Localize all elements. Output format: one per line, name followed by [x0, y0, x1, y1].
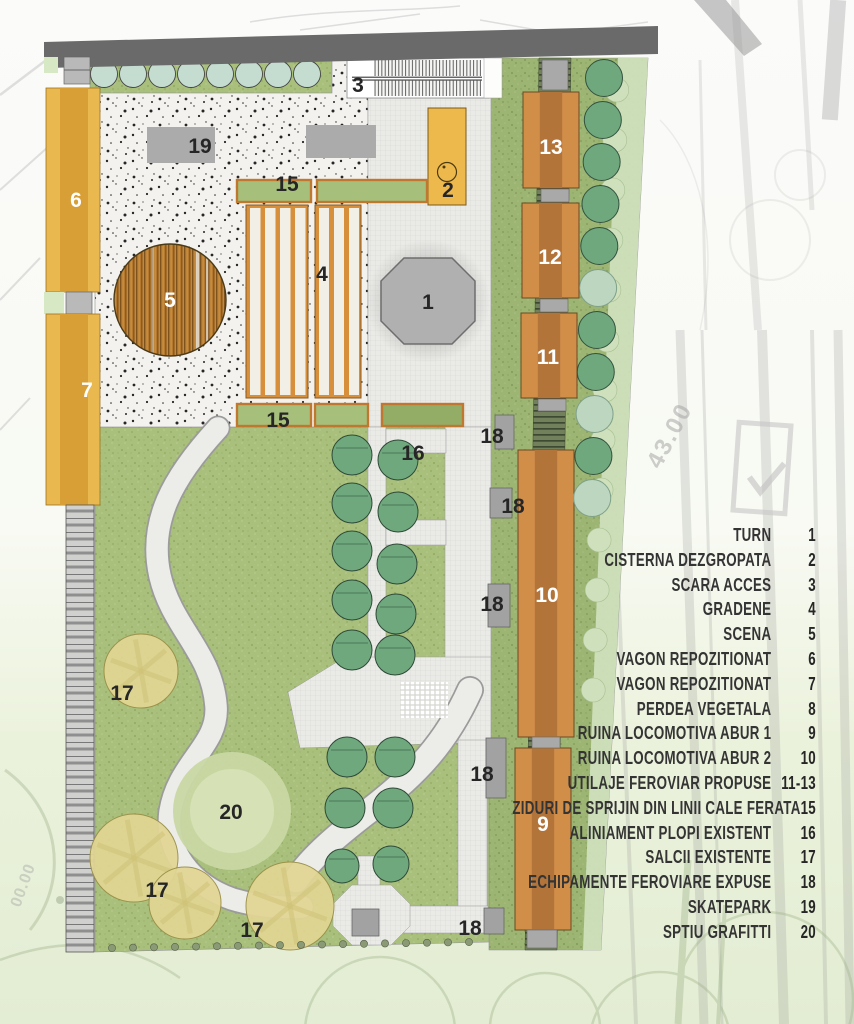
plan-label-18: 18: [501, 495, 525, 518]
plan-label-1: 1: [422, 291, 434, 314]
legend-row: SCARA ACCES 3: [514, 573, 816, 598]
legend-row: SALCII EXISTENTE 17: [514, 845, 816, 870]
legend-row: PERDEA VEGETALA 8: [514, 697, 816, 722]
legend-number: 17: [771, 845, 816, 870]
legend-label: RUINA LOCOMOTIVA ABUR 2: [578, 746, 772, 771]
tree-icon: [332, 630, 372, 670]
legend-number: 3: [771, 573, 816, 598]
legend-row: UTILAJE FEROVIAR PROPUSE 11-13: [514, 771, 816, 796]
plan-label-12: 12: [538, 246, 561, 269]
legend-label: SKATEPARK: [688, 895, 772, 920]
legend-number: 1: [771, 523, 816, 548]
left-railway-track: [66, 505, 94, 952]
legend-number: 16: [771, 821, 816, 846]
tree-icon: [332, 483, 372, 523]
legend-row: CISTERNA DEZGROPATA 2: [514, 548, 816, 573]
plan-label-2: 2: [442, 179, 454, 202]
legend-label: VAGON REPOZITIONAT: [616, 647, 771, 672]
hedge-dot: [255, 942, 262, 949]
plan-label-6: 6: [70, 189, 82, 212]
legend-number: 4: [771, 597, 816, 622]
plan-label-17: 17: [240, 919, 263, 942]
legend-label: ZIDURI DE SPRIJIN DIN LINII CALE FERATA: [512, 796, 800, 821]
tree-icon: [575, 438, 612, 475]
tree-icon: [576, 396, 613, 433]
hedge-dot: [297, 941, 304, 948]
legend: TURN 1 CISTERNA DEZGROPATA 2 SCARA ACCES…: [396, 523, 816, 945]
tree-icon: [581, 228, 618, 265]
legend-number: 20: [771, 920, 816, 945]
tree-icon: [578, 312, 615, 349]
legend-number: 15: [801, 796, 816, 821]
legend-number: 10: [771, 746, 816, 771]
tree-icon: [583, 144, 620, 181]
tree-icon: [265, 61, 292, 88]
plan-label-15: 15: [266, 409, 290, 432]
legend-number: 9: [771, 721, 816, 746]
hedge-dot: [360, 940, 367, 947]
tree-icon: [325, 849, 359, 883]
hedge-dot: [192, 943, 199, 950]
legend-row: VAGON REPOZITIONAT 6: [514, 647, 816, 672]
plan-label-13: 13: [539, 136, 562, 159]
plan-label-18: 18: [480, 425, 504, 448]
legend-label: ECHIPAMENTE FEROVIARE EXPUSE: [528, 870, 771, 895]
legend-number: 5: [771, 622, 816, 647]
legend-label: VAGON REPOZITIONAT: [616, 672, 771, 697]
legend-number: 18: [771, 870, 816, 895]
plan-label-7: 7: [81, 379, 93, 402]
legend-row: VAGON REPOZITIONAT 7: [514, 672, 816, 697]
plan-label-11: 11: [537, 346, 560, 369]
legend-number: 6: [771, 647, 816, 672]
plan-label-16: 16: [401, 442, 424, 465]
plan-label-3: 3: [352, 74, 364, 97]
legend-number: 7: [771, 672, 816, 697]
legend-label: ALINIAMENT PLOPI EXISTENT: [570, 821, 772, 846]
tree-icon: [332, 435, 372, 475]
tree-icon: [580, 270, 617, 307]
legend-label: TURN: [733, 523, 771, 548]
plan-label-19: 19: [188, 135, 211, 158]
plan-label-15: 15: [275, 173, 299, 196]
tree-icon: [325, 788, 365, 828]
legend-number: 19: [771, 895, 816, 920]
tree-icon: [584, 102, 621, 139]
skate-deck: [306, 125, 376, 158]
plan-label-17: 17: [145, 879, 168, 902]
hedge-dot: [150, 944, 157, 951]
legend-row: ALINIAMENT PLOPI EXISTENT 16: [514, 821, 816, 846]
wagon-coupler: [66, 292, 92, 314]
buffer-stop: [64, 57, 90, 84]
bleachers: [246, 205, 361, 398]
hedge-dot: [318, 941, 325, 948]
hedge-dot: [213, 943, 220, 950]
legend-row: RUINA LOCOMOTIVA ABUR 2 10: [514, 746, 816, 771]
tree-icon: [582, 186, 619, 223]
hedge-dot: [276, 942, 283, 949]
legend-row: TURN 1: [514, 523, 816, 548]
legend-row: SPTIU GRAFITTI 20: [514, 920, 816, 945]
hedge-dot: [381, 940, 388, 947]
tree-icon: [327, 737, 367, 777]
tree-icon: [294, 61, 321, 88]
tree-icon: [586, 60, 623, 97]
legend-label: GRADENE: [703, 597, 772, 622]
legend-row: SKATEPARK 19: [514, 895, 816, 920]
sketch-diagonal-mark: [694, 0, 762, 56]
legend-label: PERDEA VEGETALA: [637, 697, 772, 722]
legend-row: ZIDURI DE SPRIJIN DIN LINII CALE FERATA …: [514, 796, 816, 821]
hedge-dot: [108, 944, 115, 951]
legend-label: SALCII EXISTENTE: [645, 845, 771, 870]
wagon-7: [46, 314, 100, 505]
sketch-dim-00: 00.00: [8, 861, 39, 909]
landscape-plan-canvas: 43.00 00.00: [0, 0, 854, 1024]
tree-icon: [207, 61, 234, 88]
tree-icon: [332, 580, 372, 620]
legend-row: SCENA 5: [514, 622, 816, 647]
plan-label-20: 20: [219, 801, 242, 824]
legend-label: SCARA ACCES: [671, 573, 771, 598]
plan-label-17: 17: [110, 682, 133, 705]
tree-icon: [577, 354, 614, 391]
track-pad: [542, 60, 568, 90]
tree-icon: [332, 531, 372, 571]
sketch-dim-43: 43.00: [641, 398, 698, 473]
hedge-dot: [234, 942, 241, 949]
plan-label-5: 5: [164, 289, 176, 312]
legend-label: SPTIU GRAFITTI: [663, 920, 771, 945]
legend-number: 11-13: [771, 771, 816, 796]
tree-icon: [236, 61, 263, 88]
legend-number: 8: [771, 697, 816, 722]
legend-label: UTILAJE FEROVIAR PROPUSE: [568, 771, 772, 796]
legend-row: GRADENE 4: [514, 597, 816, 622]
legend-row: RUINA LOCOMOTIVA ABUR 1 9: [514, 721, 816, 746]
access-stairs: [347, 58, 502, 98]
hedge-dot: [339, 941, 346, 948]
legend-label: RUINA LOCOMOTIVA ABUR 1: [578, 721, 772, 746]
legend-row: ECHIPAMENTE FEROVIARE EXPUSE 18: [514, 870, 816, 895]
plan-label-4: 4: [316, 263, 328, 286]
legend-number: 2: [771, 548, 816, 573]
legend-label: CISTERNA DEZGROPATA: [604, 548, 771, 573]
tree-icon: [574, 480, 611, 517]
hedge-dot: [171, 943, 178, 950]
legend-label: SCENA: [723, 622, 771, 647]
hedge-dot: [129, 944, 136, 951]
